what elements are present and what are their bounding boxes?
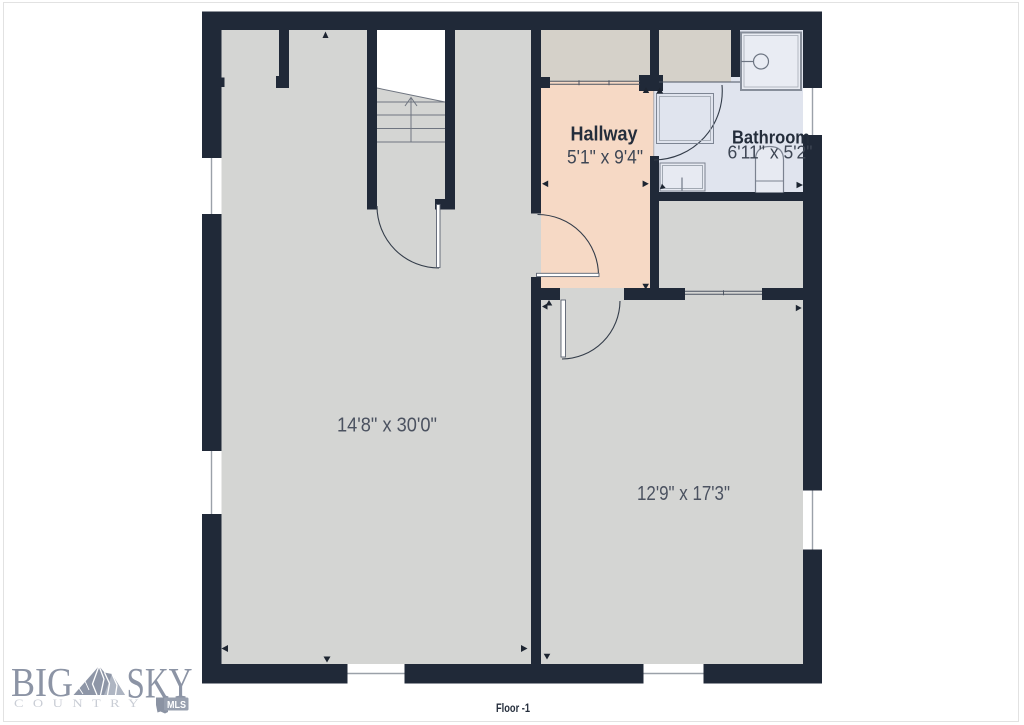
- svg-text:12'9" x 17'3": 12'9" x 17'3": [637, 483, 730, 505]
- svg-text:COUNTRY: COUNTRY: [14, 696, 148, 710]
- svg-text:Floor -1: Floor -1: [496, 701, 530, 715]
- svg-text:14'8" x 30'0": 14'8" x 30'0": [337, 414, 437, 437]
- svg-text:5'1" x 9'4": 5'1" x 9'4": [567, 148, 643, 169]
- svg-text:Hallway: Hallway: [571, 123, 639, 146]
- svg-text:6'11" x 5'2": 6'11" x 5'2": [728, 143, 813, 163]
- svg-text:MLS: MLS: [167, 699, 186, 711]
